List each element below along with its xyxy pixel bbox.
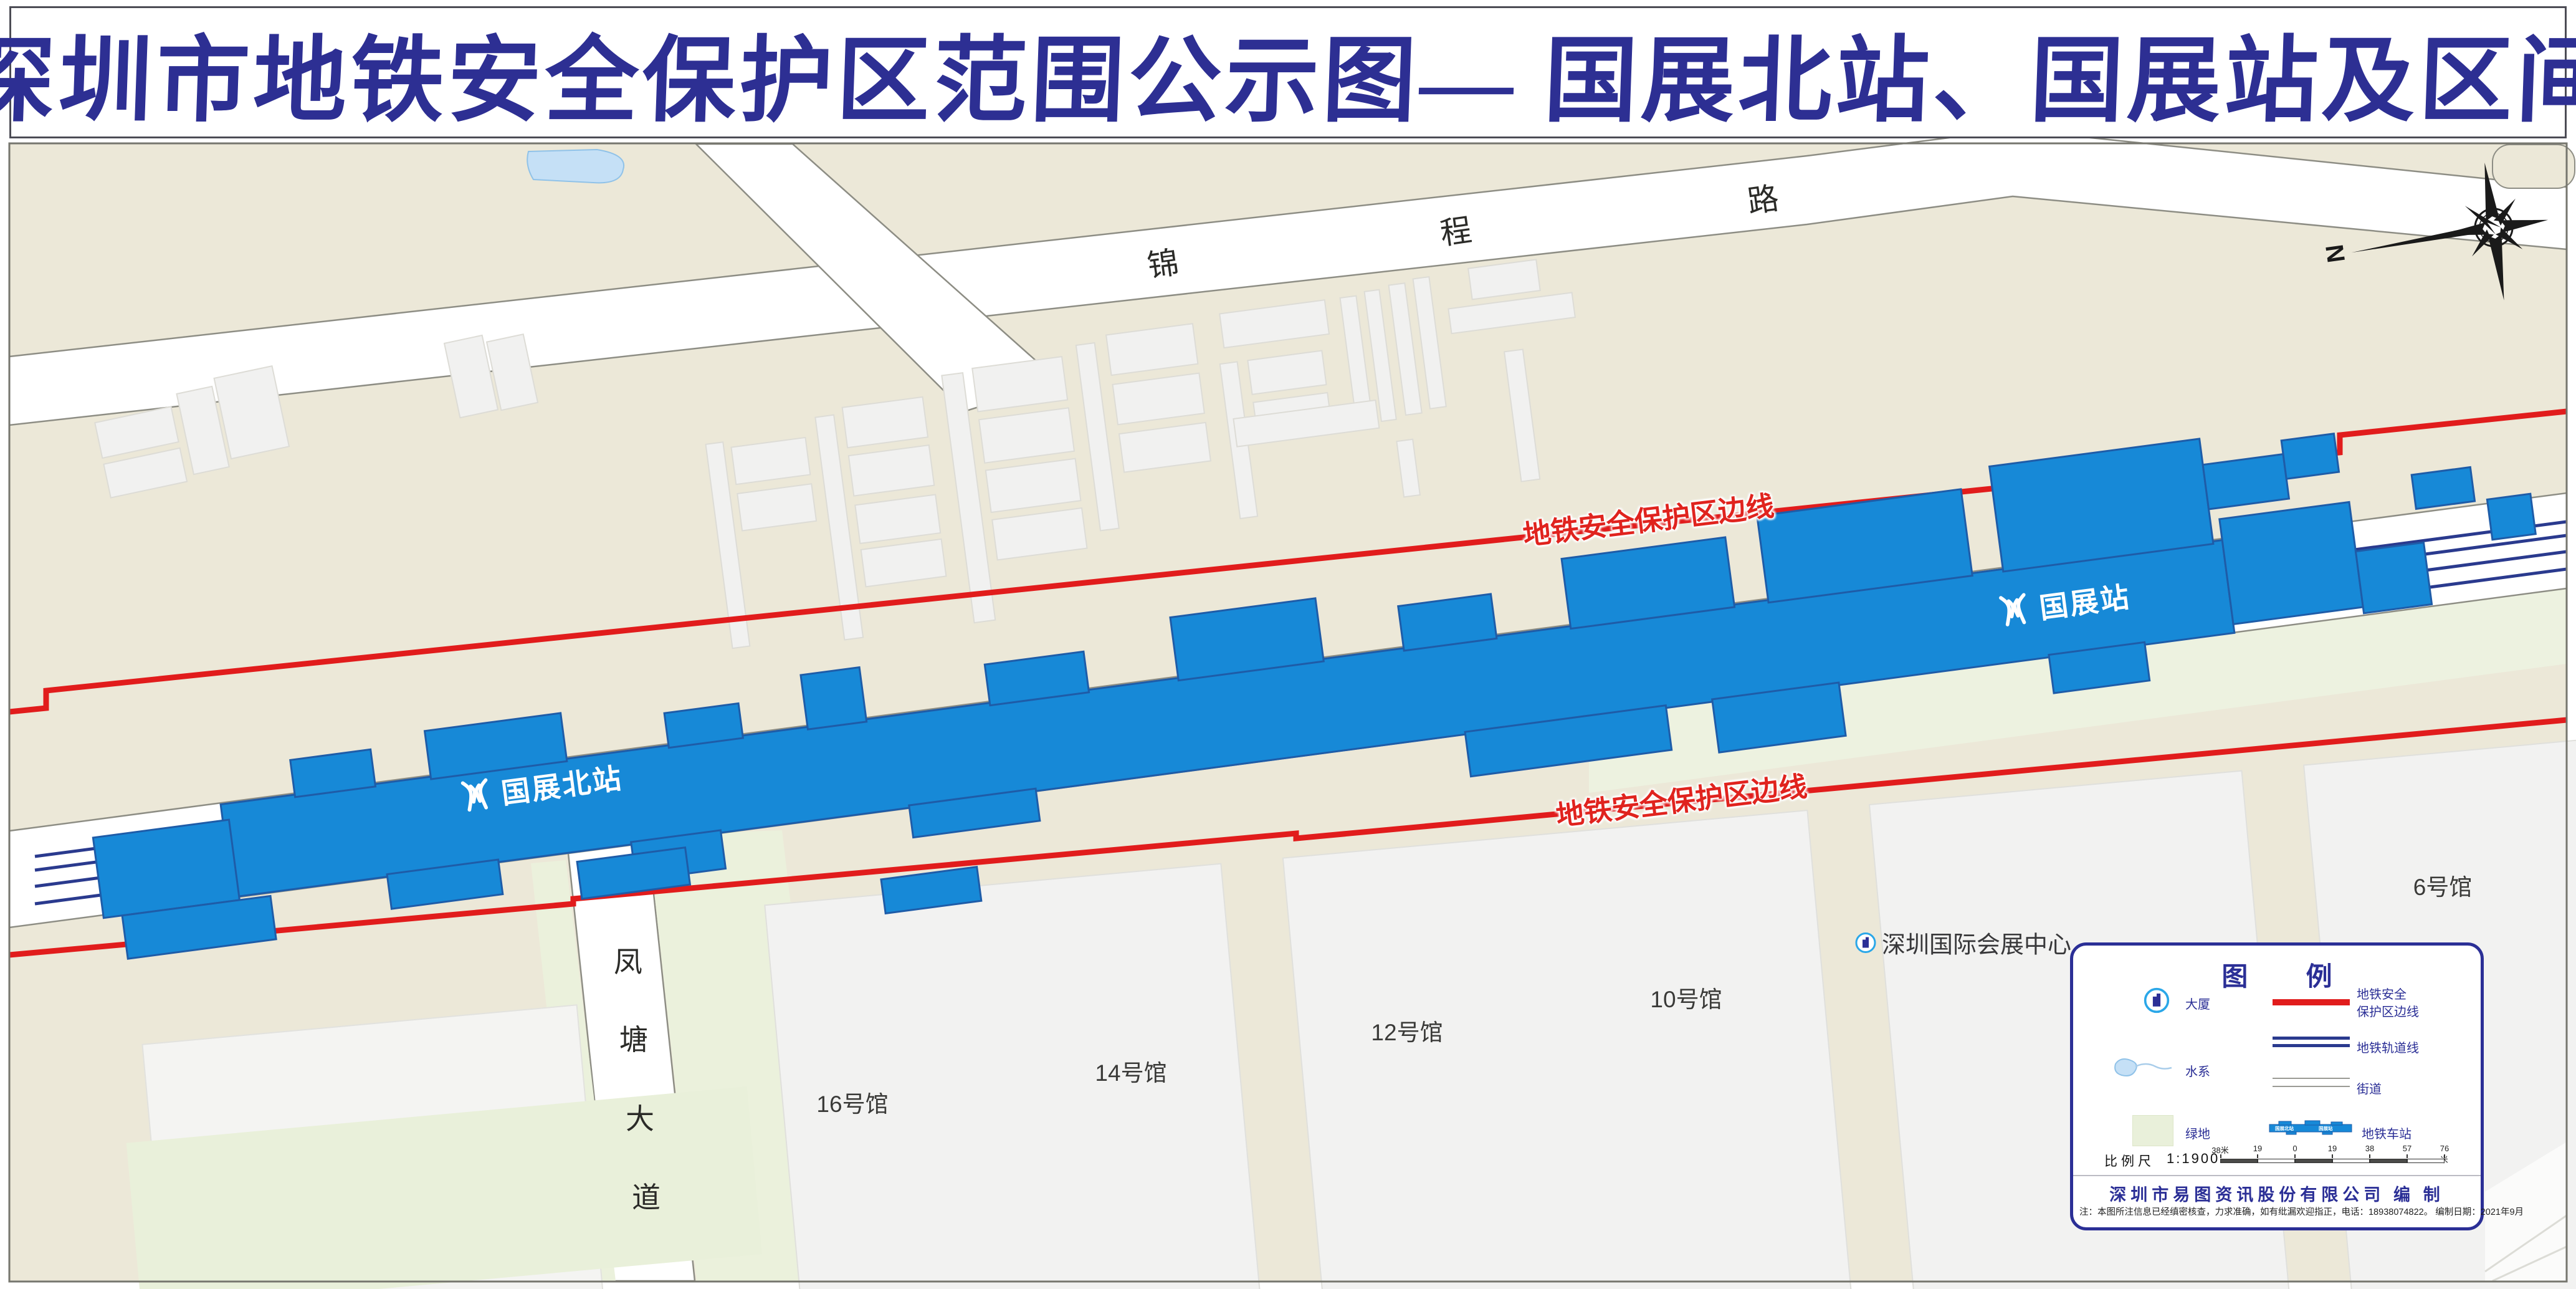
scale-bar-segments [2220, 1159, 2445, 1163]
legend-note: 注：本图所注信息已经缜密核查，力求准确，如有纰漏欢迎指正，电话：18938074… [2079, 1205, 2524, 1218]
hall-label-12: 12号馆 [1371, 1013, 1443, 1047]
station-swatch: 国展北站 国展站 [2268, 1119, 2355, 1136]
legend-water-label: 水系 [2185, 1061, 2210, 1080]
corner-block-ne [2493, 145, 2575, 188]
scale-tick: 38 [2365, 1144, 2374, 1153]
parcel-hall-12-10 [1283, 810, 1857, 1289]
building-icon [2143, 987, 2170, 1014]
legend-street-label: 街道 [2357, 1079, 2382, 1097]
track-line-swatch [2273, 1037, 2350, 1047]
compass-n-label: N [2321, 242, 2351, 264]
road-label-tang: 塘 [619, 1017, 648, 1058]
legend-protection-label-2: 保护区边线 [2357, 1002, 2419, 1020]
scale-bar: 38米 19 0 19 38 57 76米 [2220, 1144, 2446, 1169]
legend-protection-label-1: 地铁安全 [2357, 984, 2407, 1002]
scale-tick: 19 [2253, 1144, 2262, 1153]
legend-track-label: 地铁轨道线 [2357, 1038, 2419, 1056]
mini-station-north-label: 国展北站 [2275, 1125, 2294, 1132]
green-swatch [2132, 1115, 2173, 1146]
building-icon [1854, 931, 1877, 954]
hall-label-6: 6号馆 [2413, 868, 2473, 902]
legend-building-label: 大厦 [2185, 994, 2210, 1012]
legend-divider [2073, 1175, 2481, 1176]
road-label-lu: 路 [1744, 173, 1782, 222]
metro-logo-icon [457, 776, 495, 814]
mini-station-main-label: 国展站 [2319, 1125, 2333, 1132]
scale-tick: 57 [2403, 1144, 2411, 1153]
road-label-da: 大 [626, 1096, 654, 1138]
scale-tick: 19 [2328, 1144, 2337, 1153]
water-icon [2112, 1053, 2174, 1083]
water-pond [527, 150, 624, 183]
legend-station-label: 地铁车站 [2362, 1124, 2411, 1142]
road-label-jin: 锦 [1144, 237, 1181, 286]
road-label-dao: 道 [632, 1175, 661, 1216]
protection-line-swatch [2273, 999, 2350, 1005]
parcel-hall-16-14 [765, 864, 1271, 1289]
hall-label-16: 16号馆 [816, 1085, 888, 1119]
road-label-feng: 凤 [614, 939, 642, 980]
legend-box: 图 例 大厦 地铁安全 保护区边线 地铁轨道线 水系 街道 绿地 [2070, 942, 2484, 1230]
title-bar: 深圳市地铁安全保护区范围公示图— 国展北站、国展站及区间 [9, 6, 2567, 138]
notice-map-page: N 锦 程 路 凤 塘 大 道 地铁安全保护区边线 地铁安全保护区边线 国展北站… [0, 0, 2576, 1289]
legend-green-label: 绿地 [2185, 1124, 2210, 1142]
legend-title: 图 例 [2073, 956, 2481, 994]
street-swatch [2273, 1078, 2350, 1087]
scale-label: 比例尺 [2104, 1151, 2155, 1170]
convention-center-label: 深圳国际会展中心 [1854, 926, 2071, 960]
scale-tick: 0 [2292, 1144, 2297, 1153]
publisher-name: 深圳市易图资讯股份有限公司 编 制 [2073, 1181, 2481, 1205]
hall-label-10: 10号馆 [1650, 980, 1722, 1014]
page-title: 深圳市地铁安全保护区范围公示图— 国展北站、国展站及区间 [0, 5, 2576, 140]
metro-logo-icon [1995, 591, 2033, 629]
hall-label-14: 14号馆 [1095, 1054, 1166, 1088]
convention-center-name: 深圳国际会展中心 [1882, 926, 2071, 960]
road-label-cheng: 程 [1437, 205, 1474, 254]
